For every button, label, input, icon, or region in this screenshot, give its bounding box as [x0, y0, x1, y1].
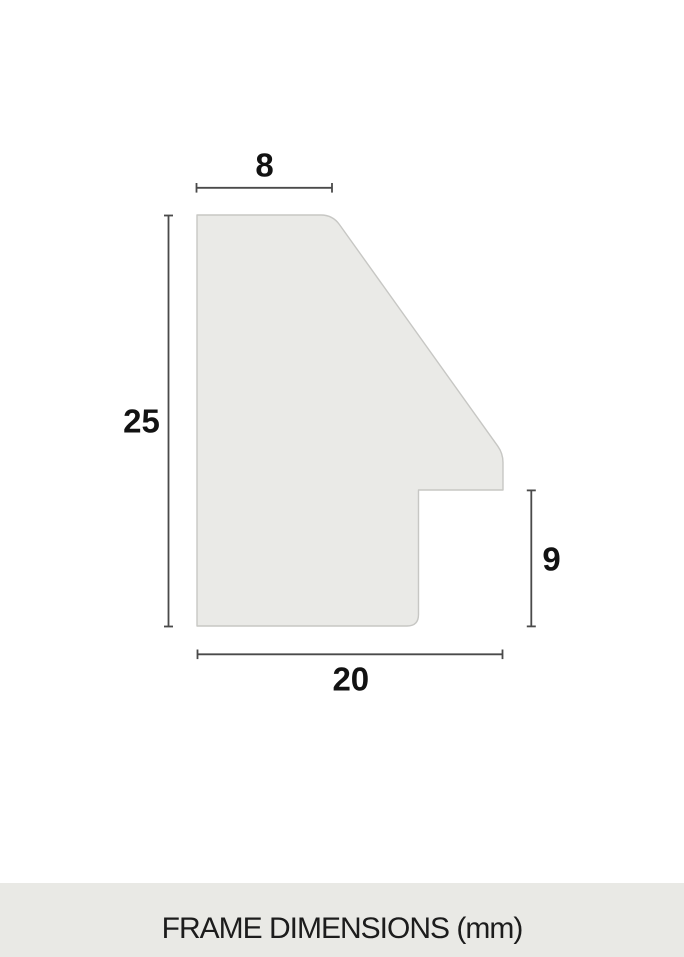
svg-text:8: 8	[255, 147, 273, 184]
svg-text:9: 9	[542, 541, 560, 578]
svg-text:FRAME DIMENSIONS (mm): FRAME DIMENSIONS (mm)	[162, 912, 523, 945]
svg-text:20: 20	[332, 661, 369, 698]
svg-text:25: 25	[123, 403, 160, 440]
